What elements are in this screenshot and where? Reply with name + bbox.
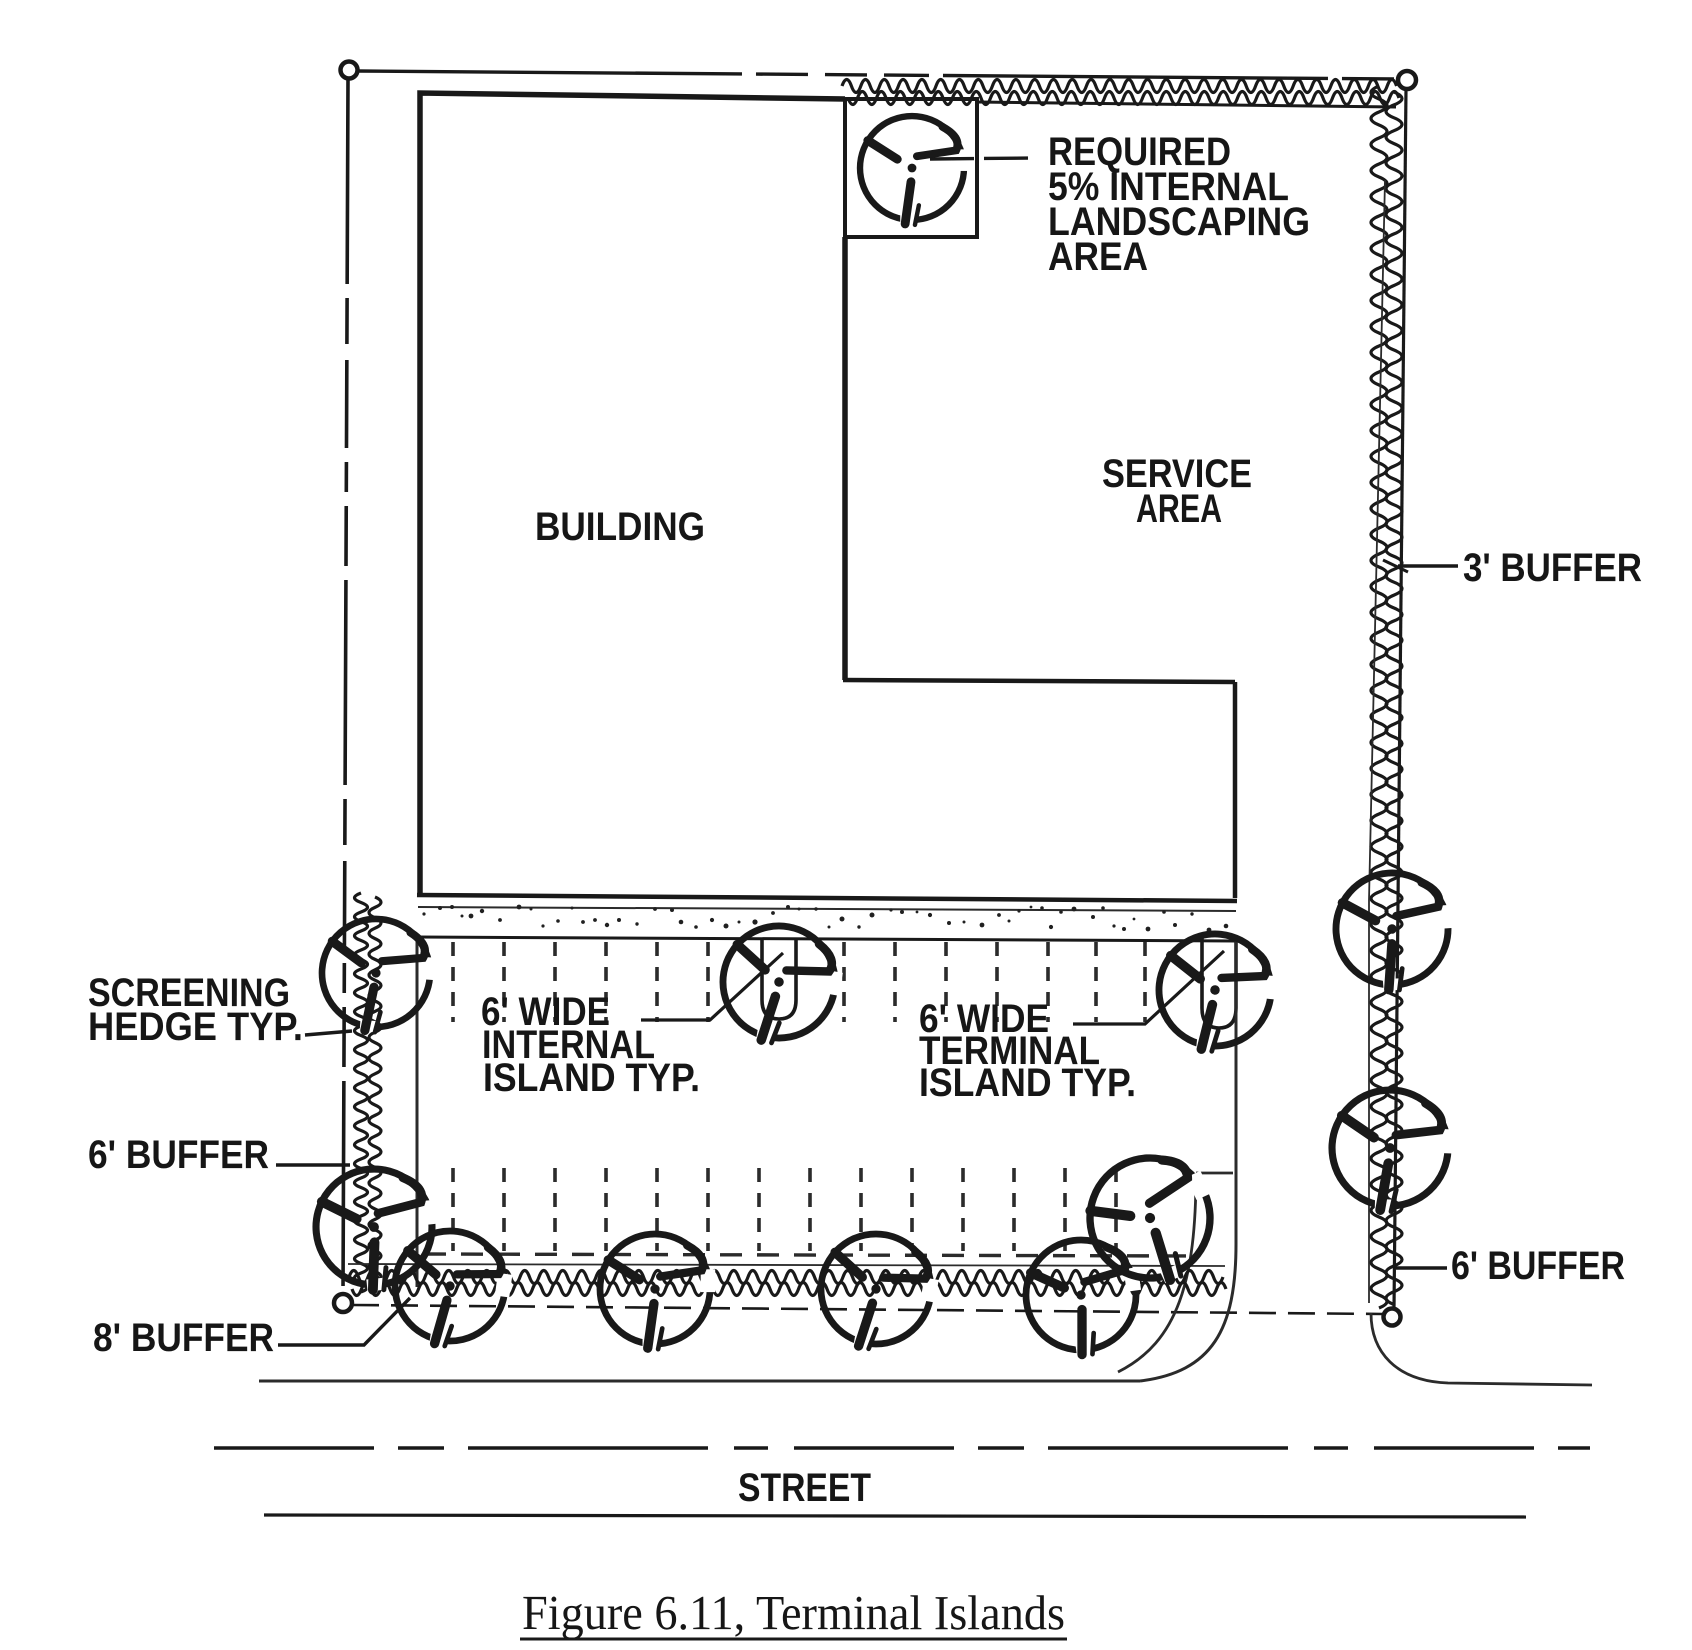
svg-text:HEDGE TYP.: HEDGE TYP.	[88, 1005, 303, 1049]
svg-text:ISLAND TYP.: ISLAND TYP.	[919, 1061, 1136, 1105]
svg-text:AREA: AREA	[1136, 487, 1222, 531]
svg-text:8' BUFFER: 8' BUFFER	[93, 1316, 274, 1360]
svg-text:STREET: STREET	[738, 1466, 871, 1510]
svg-text:BUILDING: BUILDING	[535, 505, 705, 549]
svg-text:Figure 6.11, Terminal Islands: Figure 6.11, Terminal Islands	[522, 1585, 1065, 1640]
svg-text:6' BUFFER: 6' BUFFER	[88, 1133, 269, 1177]
svg-text:6' BUFFER: 6' BUFFER	[1451, 1244, 1625, 1288]
svg-text:3' BUFFER: 3' BUFFER	[1463, 546, 1642, 590]
svg-text:AREA: AREA	[1048, 235, 1148, 279]
svg-text:ISLAND TYP.: ISLAND TYP.	[483, 1056, 700, 1100]
